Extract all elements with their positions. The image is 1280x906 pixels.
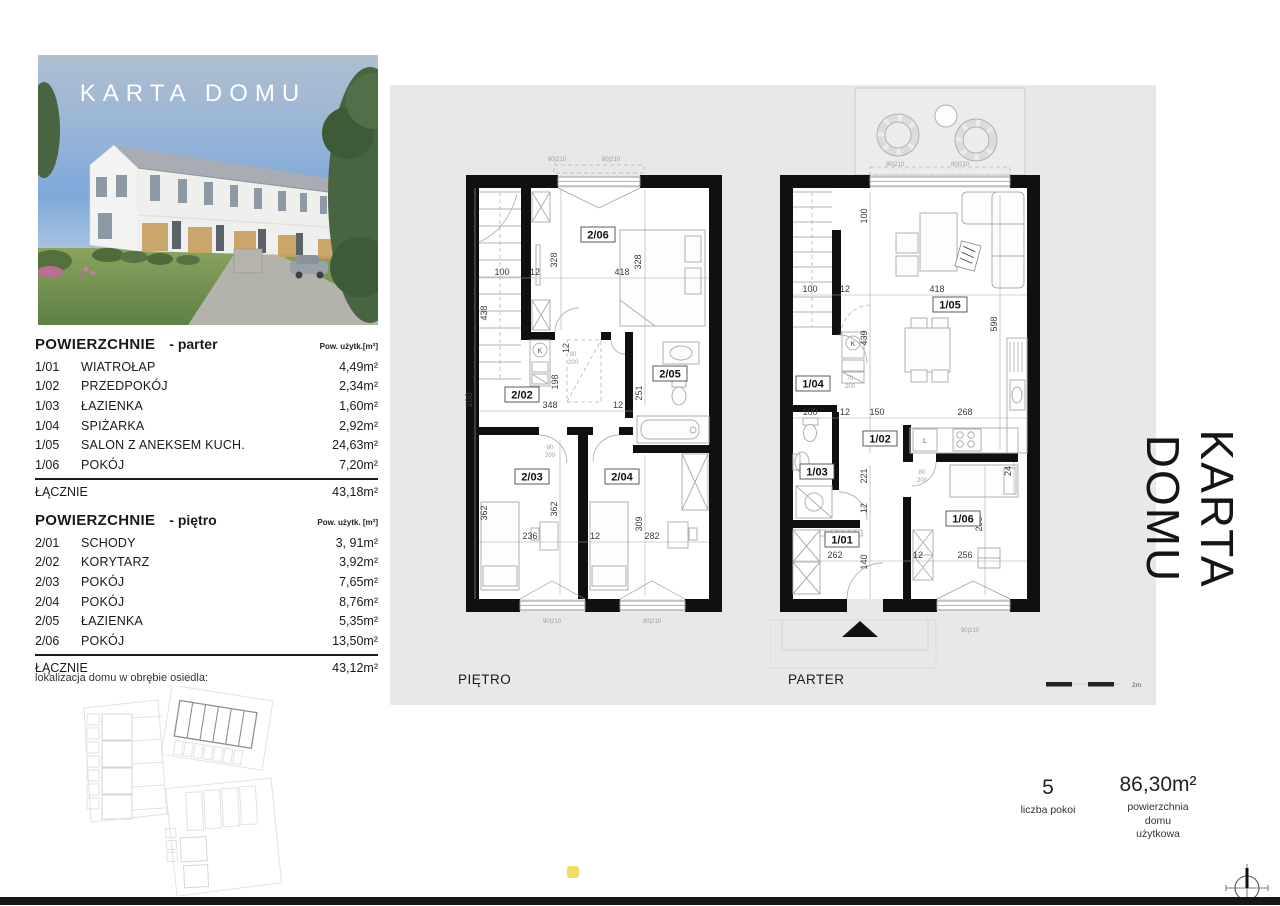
svg-text:80|210: 80|210 [548,157,567,163]
room-label: 2/05 [653,366,687,381]
table-row: 1/01WIATROŁAP4,49m² [35,357,378,377]
svg-text:362: 362 [479,505,489,520]
room-label: 2/04 [605,469,639,484]
entrance-porch [770,620,936,668]
svg-text:24: 24 [1003,466,1013,476]
table-row: 1/06POKÓJ7,20m² [35,455,378,475]
svg-text:256: 256 [957,550,972,560]
svg-text:100: 100 [802,284,817,294]
svg-text:100: 100 [802,407,817,417]
st ove-icon [953,429,981,451]
total-area: 86,30m² [1112,773,1204,797]
svg-text:12: 12 [840,407,850,417]
floor-plan-parter: K L [770,80,1070,680]
svg-text:200: 200 [845,384,856,390]
table-row: 1/05SALON Z ANEKSEM KUCH.24,63m² [35,435,378,455]
washer-letter: K [851,341,856,348]
table-unit-header: Pow. użytk. [m²] [317,518,378,527]
table-total-row: ŁĄCZNIE 43,18m² [35,478,378,505]
svg-text:1/03: 1/03 [806,467,827,479]
table-row: 2/06POKÓJ13,50m² [35,631,378,651]
room-label: 2/02 [505,387,539,402]
dining-table-icon [905,328,950,372]
table-row: 2/03POKÓJ7,65m² [35,572,378,592]
svg-text:2/03: 2/03 [521,472,542,484]
svg-text:348: 348 [542,400,557,410]
svg-text:80|210: 80|210 [602,157,621,163]
svg-text:12: 12 [530,267,540,277]
table-title: POWIERZCHNIE [35,336,155,353]
svg-text:1/06: 1/06 [952,514,973,526]
svg-text:80: 80 [570,352,577,358]
svg-text:262: 262 [827,550,842,560]
table-title: POWIERZCHNIE [35,512,155,529]
svg-text:100: 100 [494,267,509,277]
plan-label-parter: PARTER [788,672,845,687]
coffee-table-icon [920,213,957,271]
site-block-left [84,700,167,822]
svg-text:90|210: 90|210 [643,619,662,625]
garden-table-icon [935,105,957,127]
bottom-bar [0,897,1280,905]
svg-text:1/05: 1/05 [939,300,960,312]
svg-text:12: 12 [840,284,850,294]
svg-text:221: 221 [859,468,869,483]
estate-site-plan [28,686,363,896]
table-areas-parter: POWIERZCHNIE - parter Pow. użytk.[m²] 1/… [35,336,378,505]
washer-letter: K [538,348,543,355]
accent-dot [567,866,579,878]
terrace [855,88,1025,175]
table-row: 2/04POKÓJ8,76m² [35,592,378,612]
svg-text:200: 200 [568,360,579,366]
svg-text:200: 200 [917,478,928,484]
svg-text:12: 12 [913,550,923,560]
scale-bar: 2m [1040,676,1150,692]
table-row: 2/01SCHODY3, 91m² [35,533,378,553]
table-row: 1/03ŁAZIENKA1,60m² [35,396,378,416]
svg-text:236: 236 [522,531,537,541]
rooms-count: 5 [1008,776,1088,800]
svg-text:12: 12 [859,503,869,513]
table-row: 2/02KORYTARZ3,92m² [35,553,378,573]
table-row: 2/05ŁAZIENKA5,35m² [35,611,378,631]
svg-text:328: 328 [633,254,643,269]
svg-text:100: 100 [859,208,869,223]
toilet-icon [804,425,817,442]
table-areas-pietro: POWIERZCHNIE - piętro Pow. użytk. [m²] 2… [35,512,378,681]
vertical-page-title: KARTA DOMU [1136,354,1244,664]
svg-text:1/02: 1/02 [869,434,890,446]
svg-text:80: 80 [919,470,926,476]
svg-text:100: 100 [464,392,474,407]
rooms-caption: liczba pokoi [1008,804,1088,818]
svg-text:328: 328 [549,252,559,267]
svg-text:438: 438 [479,305,489,320]
table-unit-header: Pow. użytk.[m²] [320,342,378,351]
room-label: 1/02 [863,431,897,446]
svg-text:1/01: 1/01 [831,535,852,547]
svg-text:200: 200 [545,453,556,459]
room-label: 2/03 [515,469,549,484]
photo-fence [234,249,262,273]
svg-text:268: 268 [957,407,972,417]
entrance-arrow-icon [842,621,878,637]
svg-text:12: 12 [613,400,623,410]
house-photo: KARTA DOMU [38,55,378,325]
floor-plan-pietro: K [455,150,755,630]
table-row: 1/04SPIŻARKA2,92m² [35,416,378,436]
svg-text:2/06: 2/06 [587,230,608,242]
svg-text:80|210: 80|210 [886,162,905,168]
svg-text:418: 418 [929,284,944,294]
svg-text:418: 418 [614,267,629,277]
svg-text:2/02: 2/02 [511,390,532,402]
svg-text:2/04: 2/04 [611,472,633,484]
svg-text:80: 80 [547,445,554,451]
window-rail [554,165,644,173]
svg-text:1/04: 1/04 [802,379,824,391]
toilet-icon [672,387,686,405]
svg-text:282: 282 [644,531,659,541]
site-block-bottom [163,778,282,896]
table-subtitle: - parter [169,336,217,352]
room-label: 1/05 [933,297,967,312]
svg-text:2/05: 2/05 [659,369,680,381]
svg-text:309: 309 [634,516,644,531]
scale-label: 2m [1132,682,1141,689]
room-label: 2/06 [581,227,615,242]
area-caption: powierzchnia domu użytkowa [1112,801,1204,842]
table-subtitle: - piętro [169,512,216,528]
room-label: 1/03 [800,464,834,479]
room-label: 1/04 [796,376,830,391]
room-label: 1/01 [825,532,859,547]
summary-rooms: 5 liczba pokoi [1008,776,1088,818]
svg-text:362: 362 [549,501,559,516]
svg-text:90|210: 90|210 [961,628,980,634]
fridge-letter: L [923,438,927,445]
svg-text:12: 12 [590,531,600,541]
svg-text:150: 150 [869,407,884,417]
page-title: KARTA DOMU [80,80,306,107]
summary-area: 86,30m² powierzchnia domu użytkowa [1112,773,1204,842]
svg-text:80|210: 80|210 [951,162,970,168]
svg-text:198: 198 [550,374,560,389]
svg-text:598: 598 [989,316,999,331]
svg-text:251: 251 [634,385,644,400]
site-block-highlighted [161,686,273,770]
plan-label-pietro: PIĘTRO [458,672,511,687]
room-label: 1/06 [946,511,980,526]
table-row: 1/02PRZEDPOKÓJ2,34m² [35,377,378,397]
svg-text:70: 70 [847,376,854,382]
svg-text:140: 140 [859,554,869,569]
svg-text:90|210: 90|210 [543,619,562,625]
location-caption: lokalizacja domu w obrębie osiedla: [35,672,208,684]
svg-text:439: 439 [859,330,869,345]
